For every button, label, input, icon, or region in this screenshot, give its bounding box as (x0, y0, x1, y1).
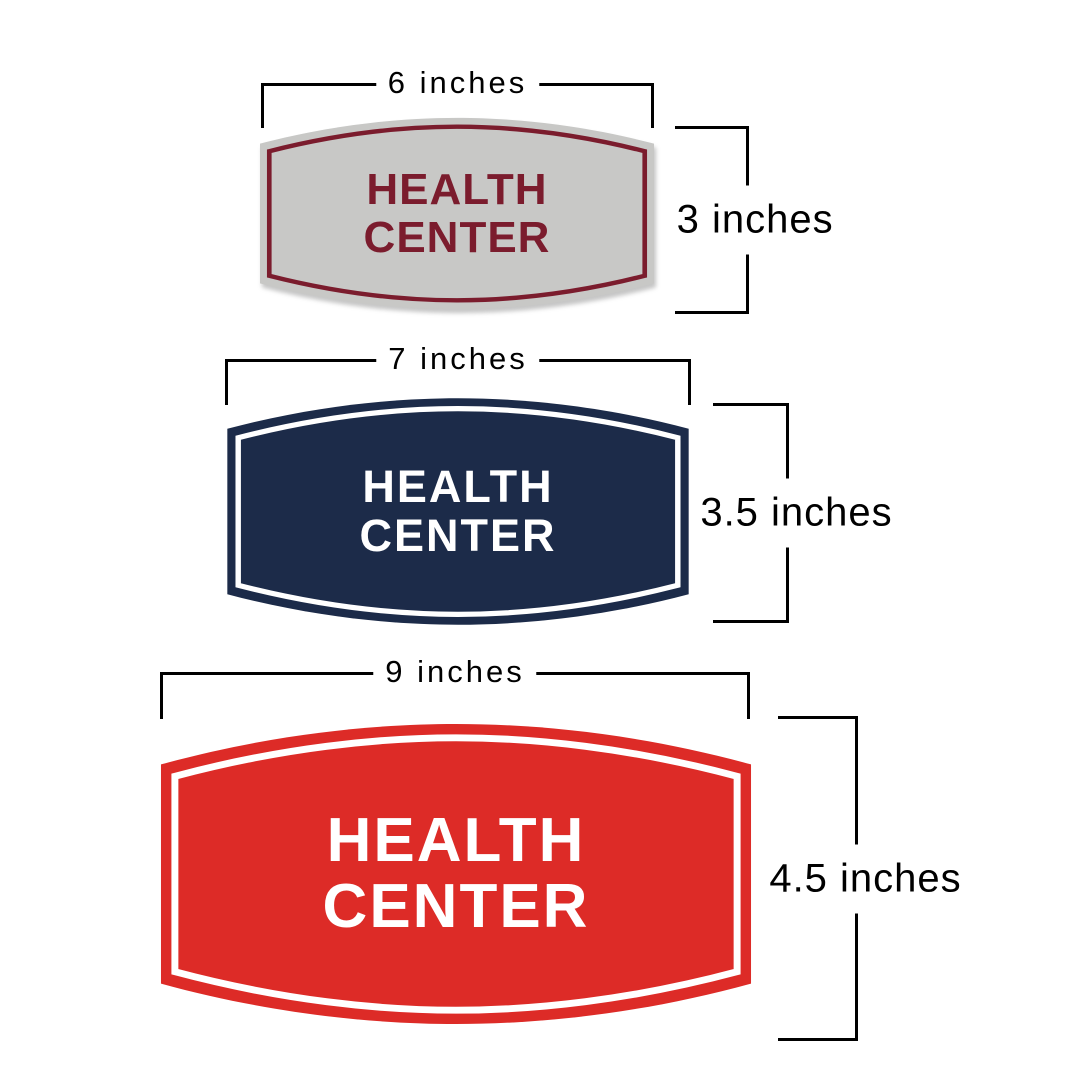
sign-label: HEALTH CENTER (225, 396, 691, 627)
sign-7x3point5-inches: HEALTH CENTER (225, 396, 691, 627)
height-dimension-sign3: 4.5 inches (778, 716, 858, 1041)
sign-label: HEALTH CENTER (258, 116, 656, 311)
sign-label-line1: HEALTH (327, 808, 586, 874)
dimension-tick (713, 620, 789, 623)
dimension-tick (778, 1038, 858, 1041)
height-dimension-label: 4.5 inches (759, 844, 971, 913)
height-dimension-sign1: 3 inches (675, 126, 749, 314)
width-dimension-label: 6 inches (376, 65, 539, 101)
sign-size-comparison-diagram: 6 inches HEALTH CENTER 3 inches 7 inches… (0, 0, 1082, 1082)
width-dimension-label: 9 inches (373, 654, 536, 690)
sign-6x3-inches: HEALTH CENTER (258, 116, 656, 311)
dimension-tick (675, 126, 749, 129)
dimension-tick (160, 672, 163, 719)
dimension-tick (747, 672, 750, 719)
dimension-tick (675, 311, 749, 314)
sign-label-line1: HEALTH (362, 463, 553, 511)
sign-9x4point5-inches: HEALTH CENTER (158, 721, 754, 1027)
height-dimension-label: 3.5 inches (690, 479, 902, 548)
dimension-tick (713, 403, 789, 406)
sign-label-line1: HEALTH (366, 166, 547, 213)
sign-label-line2: CENTER (323, 874, 590, 940)
sign-label-line2: CENTER (364, 214, 551, 261)
dimension-tick (778, 716, 858, 719)
sign-label: HEALTH CENTER (158, 721, 754, 1027)
height-dimension-label: 3 inches (667, 186, 844, 255)
height-dimension-sign2: 3.5 inches (713, 403, 789, 623)
sign-label-line2: CENTER (359, 512, 556, 560)
width-dimension-sign3: 9 inches (160, 672, 750, 719)
width-dimension-label: 7 inches (376, 341, 539, 377)
